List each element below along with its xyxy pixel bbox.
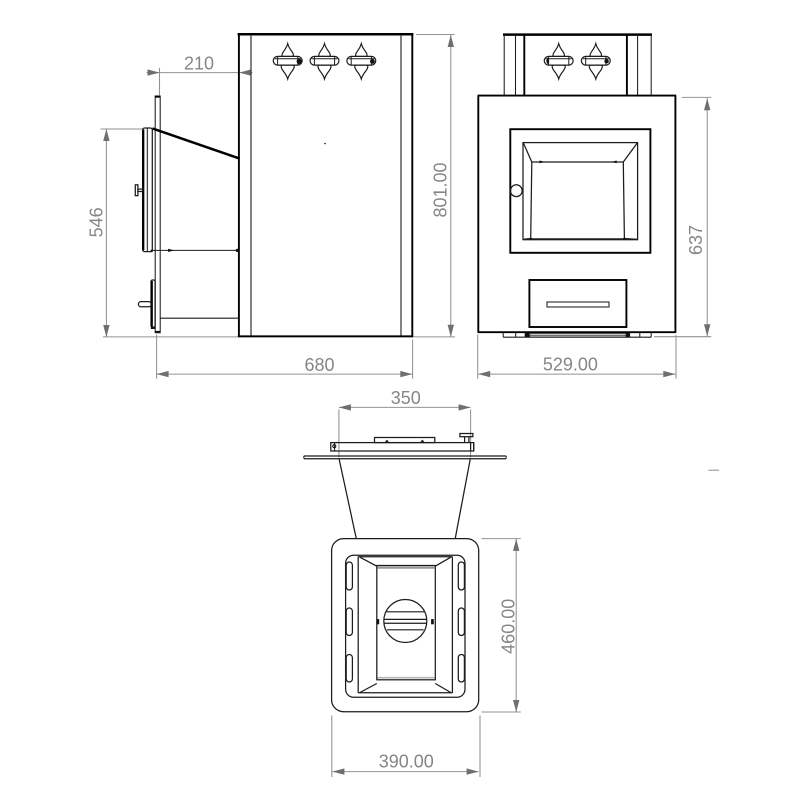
svg-text:637: 637 xyxy=(686,225,706,255)
svg-text:801.00: 801.00 xyxy=(431,162,451,217)
svg-text:680: 680 xyxy=(304,355,334,375)
svg-text:350: 350 xyxy=(391,388,421,408)
svg-text:546: 546 xyxy=(86,207,106,237)
svg-text:210: 210 xyxy=(184,53,214,73)
svg-text:460.00: 460.00 xyxy=(499,599,519,654)
svg-text:529.00: 529.00 xyxy=(543,355,598,375)
svg-text:390.00: 390.00 xyxy=(379,752,434,772)
